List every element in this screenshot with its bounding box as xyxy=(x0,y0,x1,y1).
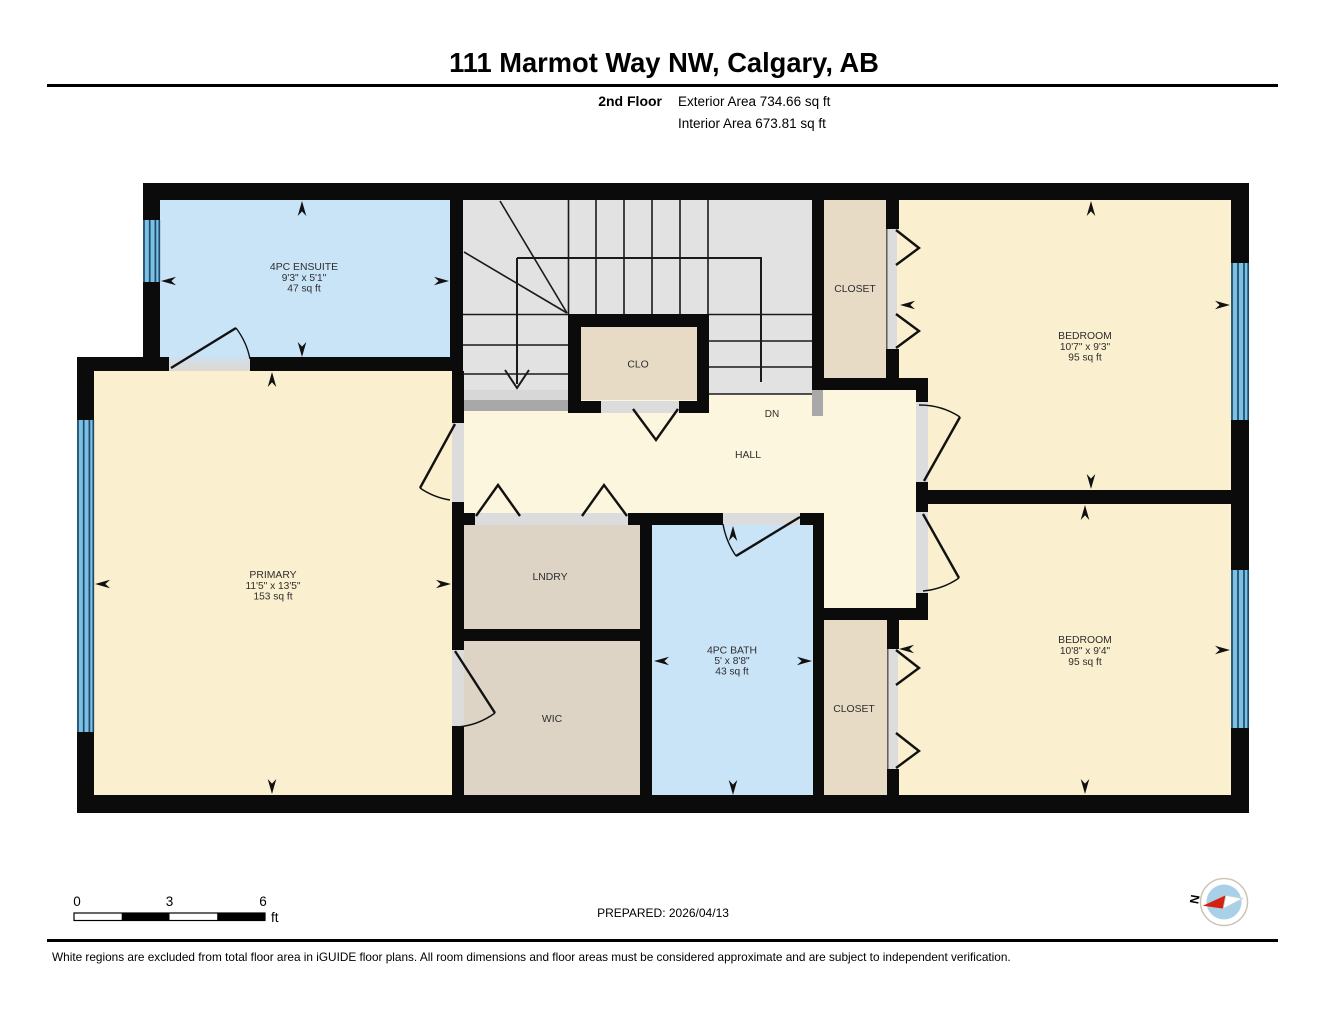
svg-text:3: 3 xyxy=(166,894,174,909)
svg-text:111 Marmot Way NW, Calgary, AB: 111 Marmot Way NW, Calgary, AB xyxy=(449,47,879,78)
svg-text:CLOSET: CLOSET xyxy=(834,284,876,295)
svg-text:43 sq ft: 43 sq ft xyxy=(715,667,749,678)
svg-text:10'7" x 9'3": 10'7" x 9'3" xyxy=(1060,342,1111,353)
svg-text:0: 0 xyxy=(73,894,81,909)
svg-text:11'5" x 13'5": 11'5" x 13'5" xyxy=(245,581,300,592)
svg-text:4PC ENSUITE: 4PC ENSUITE xyxy=(270,262,338,273)
svg-text:WIC: WIC xyxy=(542,714,563,725)
svg-text:4PC BATH: 4PC BATH xyxy=(707,646,757,657)
svg-text:2nd Floor: 2nd Floor xyxy=(598,93,662,109)
svg-text:6: 6 xyxy=(259,894,267,909)
svg-text:Interior Area 673.81 sq ft: Interior Area 673.81 sq ft xyxy=(678,116,826,131)
svg-text:47 sq ft: 47 sq ft xyxy=(287,284,321,295)
svg-text:153 sq ft: 153 sq ft xyxy=(253,592,292,603)
svg-text:PREPARED: 2026/04/13: PREPARED: 2026/04/13 xyxy=(597,906,729,920)
svg-text:9'3" x 5'1": 9'3" x 5'1" xyxy=(282,273,327,284)
svg-text:DN: DN xyxy=(765,409,779,420)
svg-text:95 sq ft: 95 sq ft xyxy=(1068,657,1102,668)
svg-text:ft: ft xyxy=(271,910,279,925)
svg-text:10'8" x 9'4": 10'8" x 9'4" xyxy=(1060,646,1111,657)
svg-text:95 sq ft: 95 sq ft xyxy=(1068,353,1102,364)
svg-text:CLO: CLO xyxy=(627,360,648,371)
svg-text:CLOSET: CLOSET xyxy=(833,704,875,715)
svg-text:White regions are excluded fro: White regions are excluded from total fl… xyxy=(52,950,1011,964)
svg-text:PRIMARY: PRIMARY xyxy=(249,570,296,581)
svg-text:Exterior Area 734.66 sq ft: Exterior Area 734.66 sq ft xyxy=(678,94,831,109)
svg-text:HALL: HALL xyxy=(735,450,761,461)
svg-text:BEDROOM: BEDROOM xyxy=(1058,331,1112,342)
svg-text:LNDRY: LNDRY xyxy=(532,572,567,583)
svg-text:BEDROOM: BEDROOM xyxy=(1058,635,1112,646)
svg-text:5' x 8'8": 5' x 8'8" xyxy=(714,656,750,667)
